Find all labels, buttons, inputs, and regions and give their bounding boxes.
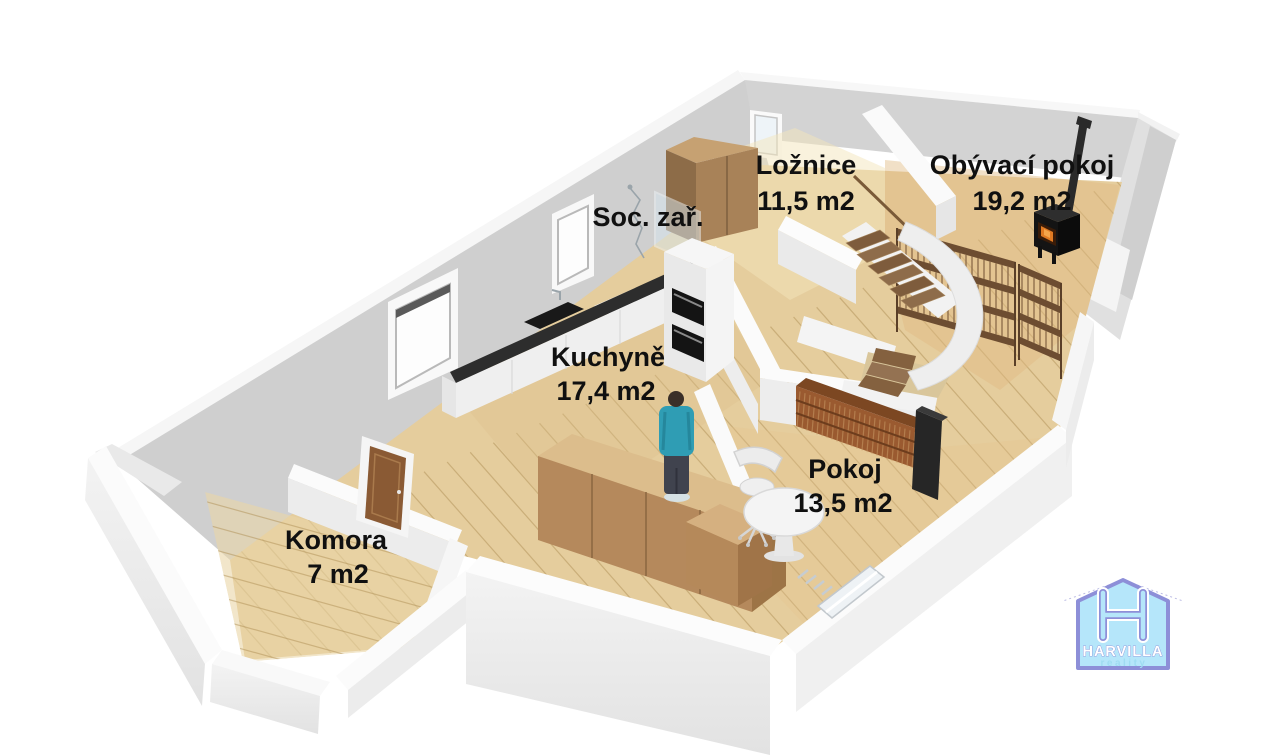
room-area-loznice: 11,5 m2 — [757, 186, 855, 216]
room-label-soc-zar: Soc. zař. — [592, 202, 703, 232]
room-label-komora: Komora — [285, 525, 388, 555]
room-label-loznice: Ložnice — [756, 150, 857, 180]
person-figure — [659, 391, 694, 502]
floorplan-3d-render: Ložnice 11,5 m2 Obývací pokoj 19,2 m2 So… — [0, 0, 1280, 755]
logo-tagline-text: reality — [1101, 658, 1148, 669]
room-area-komora: 7 m2 — [307, 559, 369, 589]
room-label-kuchyne: Kuchyně — [551, 342, 665, 372]
room-area-pokoj: 13,5 m2 — [793, 488, 892, 518]
room-label-obyvaci-pokoj: Obývací pokoj — [930, 150, 1115, 180]
door — [356, 436, 414, 538]
oven-column — [664, 238, 734, 382]
room-label-pokoj: Pokoj — [808, 454, 882, 484]
room-area-kuchyne: 17,4 m2 — [556, 376, 655, 406]
room-area-obyvaci-pokoj: 19,2 m2 — [972, 186, 1071, 216]
harvilla-logo: HARVILLA reality — [1063, 580, 1183, 669]
